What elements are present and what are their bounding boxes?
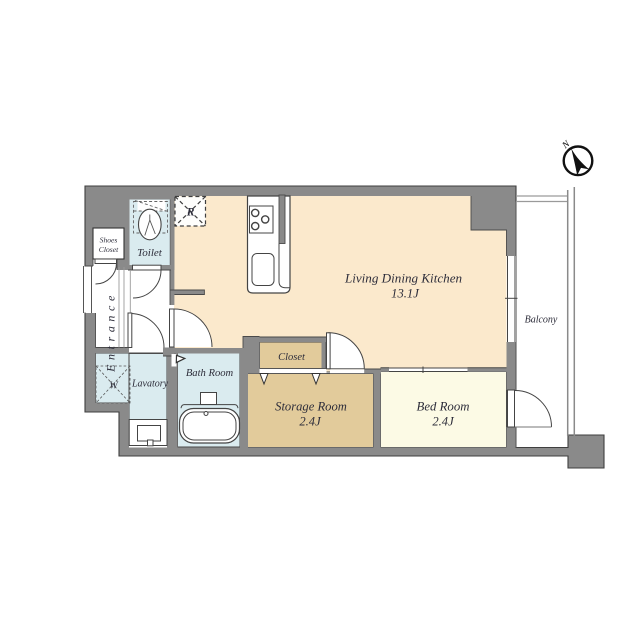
svg-text:Bath Room: Bath Room xyxy=(186,368,234,379)
svg-text:R: R xyxy=(186,207,195,219)
svg-text:2.4J: 2.4J xyxy=(299,415,322,429)
svg-text:Bed Room: Bed Room xyxy=(417,400,470,414)
svg-text:Closet: Closet xyxy=(99,245,119,254)
svg-text:Balcony: Balcony xyxy=(525,315,558,326)
svg-text:Entrance: Entrance xyxy=(104,291,118,373)
svg-text:Shoes: Shoes xyxy=(100,236,118,245)
svg-text:Living Dining Kitchen: Living Dining Kitchen xyxy=(344,271,462,286)
svg-text:Storage Room: Storage Room xyxy=(275,400,347,414)
svg-text:2.4J: 2.4J xyxy=(432,415,455,429)
svg-text:Closet: Closet xyxy=(278,352,306,363)
svg-text:13.1J: 13.1J xyxy=(391,287,420,301)
svg-text:Toilet: Toilet xyxy=(137,247,163,259)
svg-text:Lavatory: Lavatory xyxy=(131,379,169,390)
